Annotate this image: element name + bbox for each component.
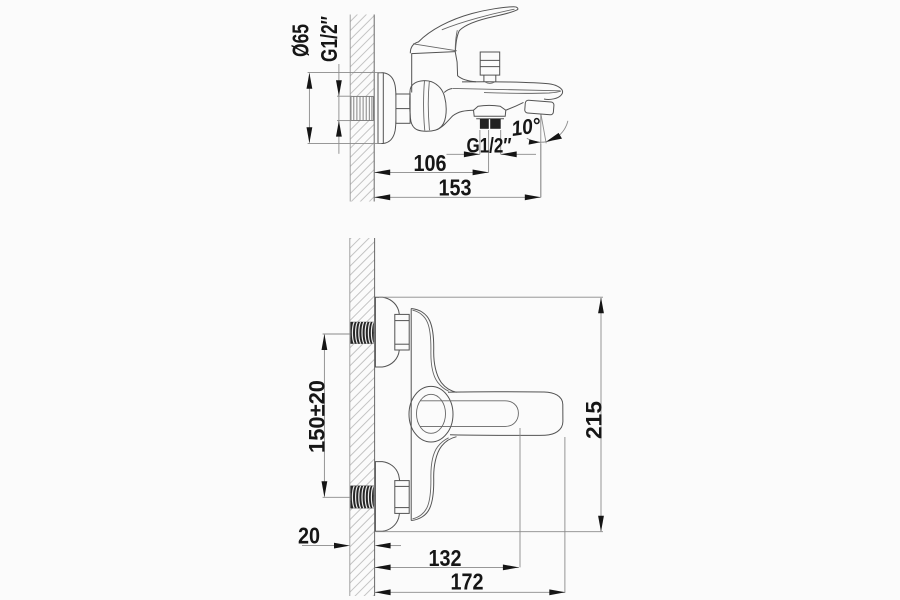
svg-text:172: 172: [451, 569, 484, 595]
svg-text:150±20: 150±20: [305, 380, 330, 453]
svg-text:10°: 10°: [510, 114, 542, 141]
svg-text:G1/2″: G1/2″: [316, 16, 342, 62]
svg-text:20: 20: [298, 523, 320, 549]
svg-text:G1/2″: G1/2″: [467, 134, 512, 158]
svg-text:106: 106: [414, 150, 447, 176]
svg-text:132: 132: [429, 545, 462, 571]
svg-text:215: 215: [582, 401, 607, 439]
svg-text:153: 153: [439, 175, 472, 201]
svg-text:Ø65: Ø65: [288, 24, 314, 57]
